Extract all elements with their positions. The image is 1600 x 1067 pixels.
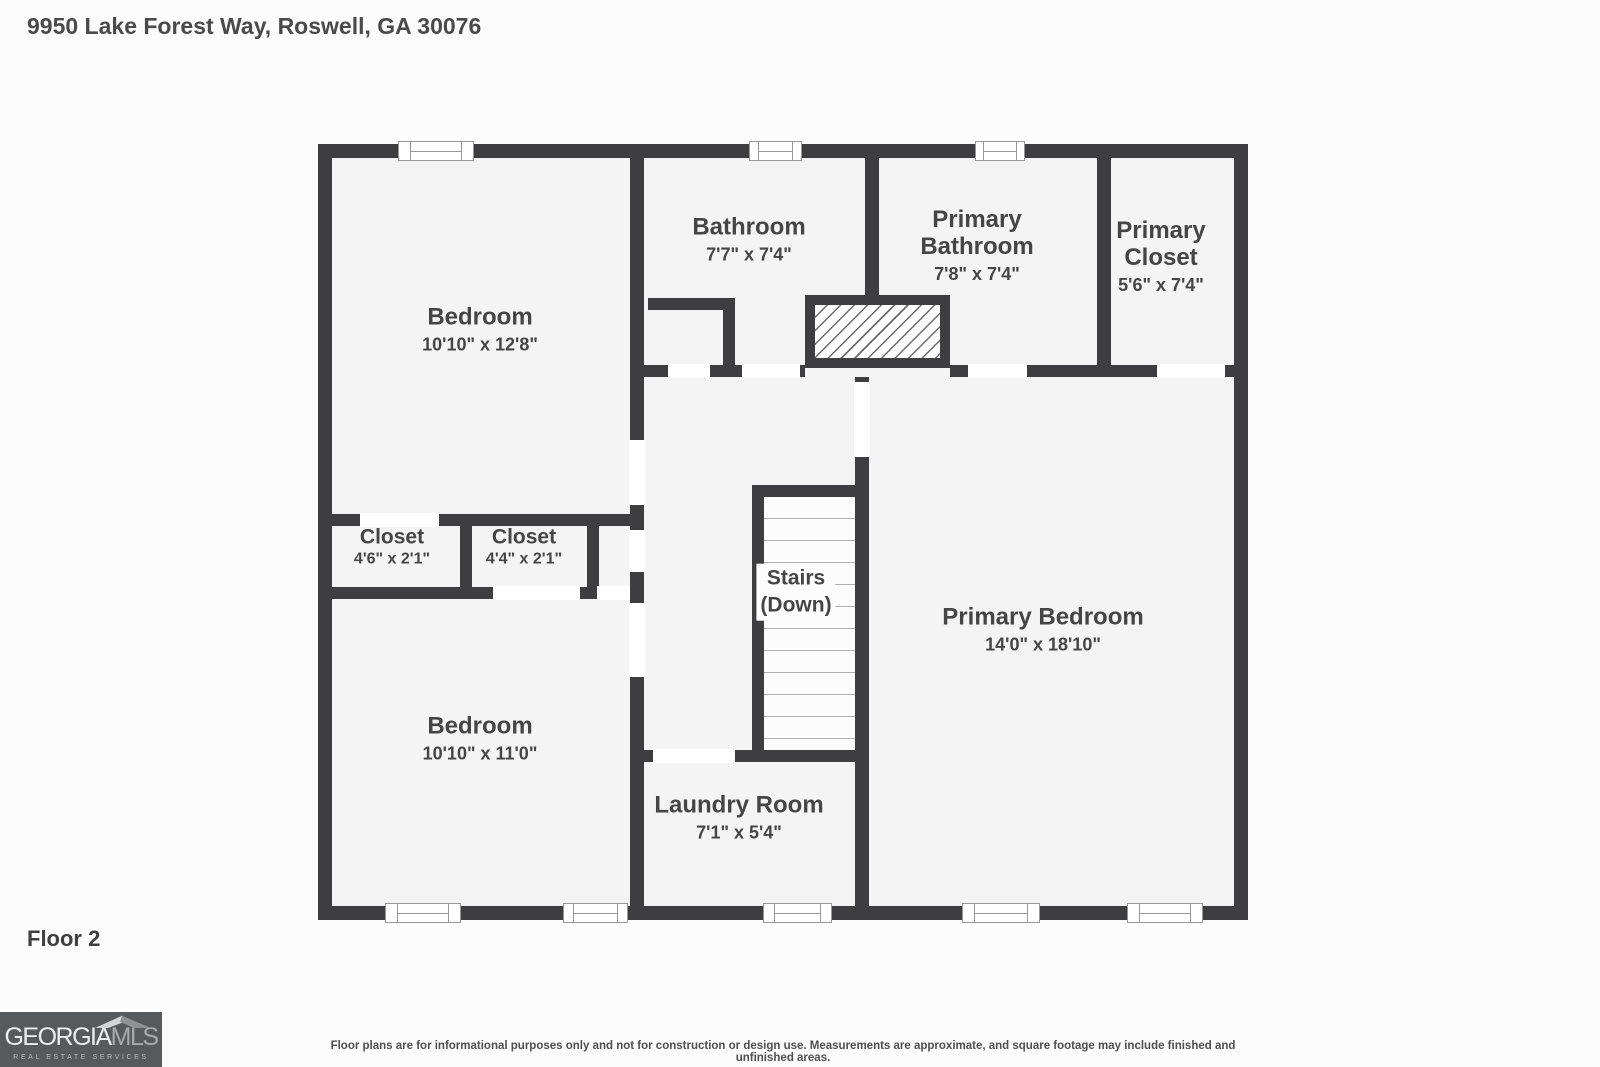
georgia-mls-logo: GEORGIAMLS REAL ESTATE SERVICES bbox=[0, 1012, 162, 1067]
wall-segment bbox=[318, 144, 332, 920]
room-label-primary-bedroom: Primary Bedroom 14'0" x 18'10" bbox=[942, 605, 1143, 656]
room-name: Bedroom bbox=[423, 714, 538, 741]
stairs-treads bbox=[764, 497, 855, 750]
floor-label: Floor 2 bbox=[27, 926, 100, 952]
room-name: Bathroom bbox=[692, 215, 805, 242]
door-opening bbox=[493, 586, 580, 600]
room-dims: 7'1" x 5'4" bbox=[654, 822, 823, 843]
room-name: Primary Bathroom bbox=[897, 207, 1057, 261]
wall-segment bbox=[1234, 144, 1248, 920]
stairs-line2: (Down) bbox=[760, 592, 831, 619]
wall-segment bbox=[865, 158, 879, 295]
hatched-chase bbox=[805, 295, 950, 368]
room-label-primary-bathroom: Primary Bathroom 7'8" x 7'4" bbox=[897, 207, 1057, 285]
door-opening bbox=[1157, 364, 1225, 378]
wall-segment bbox=[460, 514, 472, 599]
door-opening bbox=[854, 382, 870, 457]
logo-wordmark: GEORGIAMLS bbox=[0, 1025, 162, 1050]
room-name: Primary Closet bbox=[1105, 218, 1217, 272]
window-symbol bbox=[398, 141, 474, 161]
wall-segment bbox=[648, 298, 735, 310]
room-dims: 10'10" x 12'8" bbox=[422, 334, 538, 355]
window-symbol bbox=[385, 903, 461, 923]
disclaimer-text: Floor plans are for informational purpos… bbox=[318, 1040, 1248, 1064]
room-dims: 7'7" x 7'4" bbox=[692, 244, 805, 265]
door-opening bbox=[629, 603, 645, 677]
stairs-label: Stairs (Down) bbox=[756, 564, 835, 621]
window-symbol bbox=[962, 903, 1040, 923]
room-label-closet-right: Closet 4'4" x 2'1" bbox=[486, 526, 562, 569]
room-label-bedroom-bottom: Bedroom 10'10" x 11'0" bbox=[423, 714, 538, 765]
room-dims: 4'4" x 2'1" bbox=[486, 550, 562, 568]
door-opening bbox=[668, 364, 710, 378]
room-label-bathroom: Bathroom 7'7" x 7'4" bbox=[692, 215, 805, 266]
room-dims: 14'0" x 18'10" bbox=[942, 634, 1143, 655]
window-symbol bbox=[749, 141, 802, 161]
room-label-laundry: Laundry Room 7'1" x 5'4" bbox=[654, 793, 823, 844]
door-opening bbox=[653, 749, 735, 763]
room-name: Closet bbox=[354, 526, 430, 550]
window-symbol bbox=[563, 903, 628, 923]
room-dims: 4'6" x 2'1" bbox=[354, 550, 430, 568]
room-label-primary-closet: Primary Closet 5'6" x 7'4" bbox=[1105, 218, 1217, 296]
roof-icon bbox=[93, 1014, 153, 1028]
floor-plan: Bedroom 10'10" x 12'8" Bathroom 7'7" x 7… bbox=[318, 144, 1248, 920]
window-symbol bbox=[975, 141, 1025, 161]
room-dims: 5'6" x 7'4" bbox=[1105, 275, 1217, 296]
door-opening bbox=[742, 364, 800, 378]
window-symbol bbox=[763, 903, 832, 923]
room-name: Laundry Room bbox=[654, 793, 823, 820]
page-title: 9950 Lake Forest Way, Roswell, GA 30076 bbox=[27, 13, 481, 40]
wall-segment bbox=[332, 587, 630, 599]
door-opening bbox=[629, 440, 645, 505]
room-name: Primary Bedroom bbox=[942, 605, 1143, 632]
room-dims: 7'8" x 7'4" bbox=[897, 264, 1057, 285]
room-name: Bedroom bbox=[422, 305, 538, 332]
window-symbol bbox=[1127, 903, 1203, 923]
stairs-line1: Stairs bbox=[760, 565, 831, 592]
room-label-closet-left: Closet 4'6" x 2'1" bbox=[354, 526, 430, 569]
door-opening bbox=[968, 364, 1027, 378]
wall-segment bbox=[752, 485, 865, 497]
door-opening bbox=[597, 586, 630, 600]
room-label-bedroom-top: Bedroom 10'10" x 12'8" bbox=[422, 305, 538, 356]
wall-segment bbox=[752, 485, 764, 762]
room-name: Closet bbox=[486, 526, 562, 550]
room-dims: 10'10" x 11'0" bbox=[423, 743, 538, 764]
logo-tagline: REAL ESTATE SERVICES bbox=[0, 1054, 162, 1061]
door-opening bbox=[629, 530, 645, 572]
